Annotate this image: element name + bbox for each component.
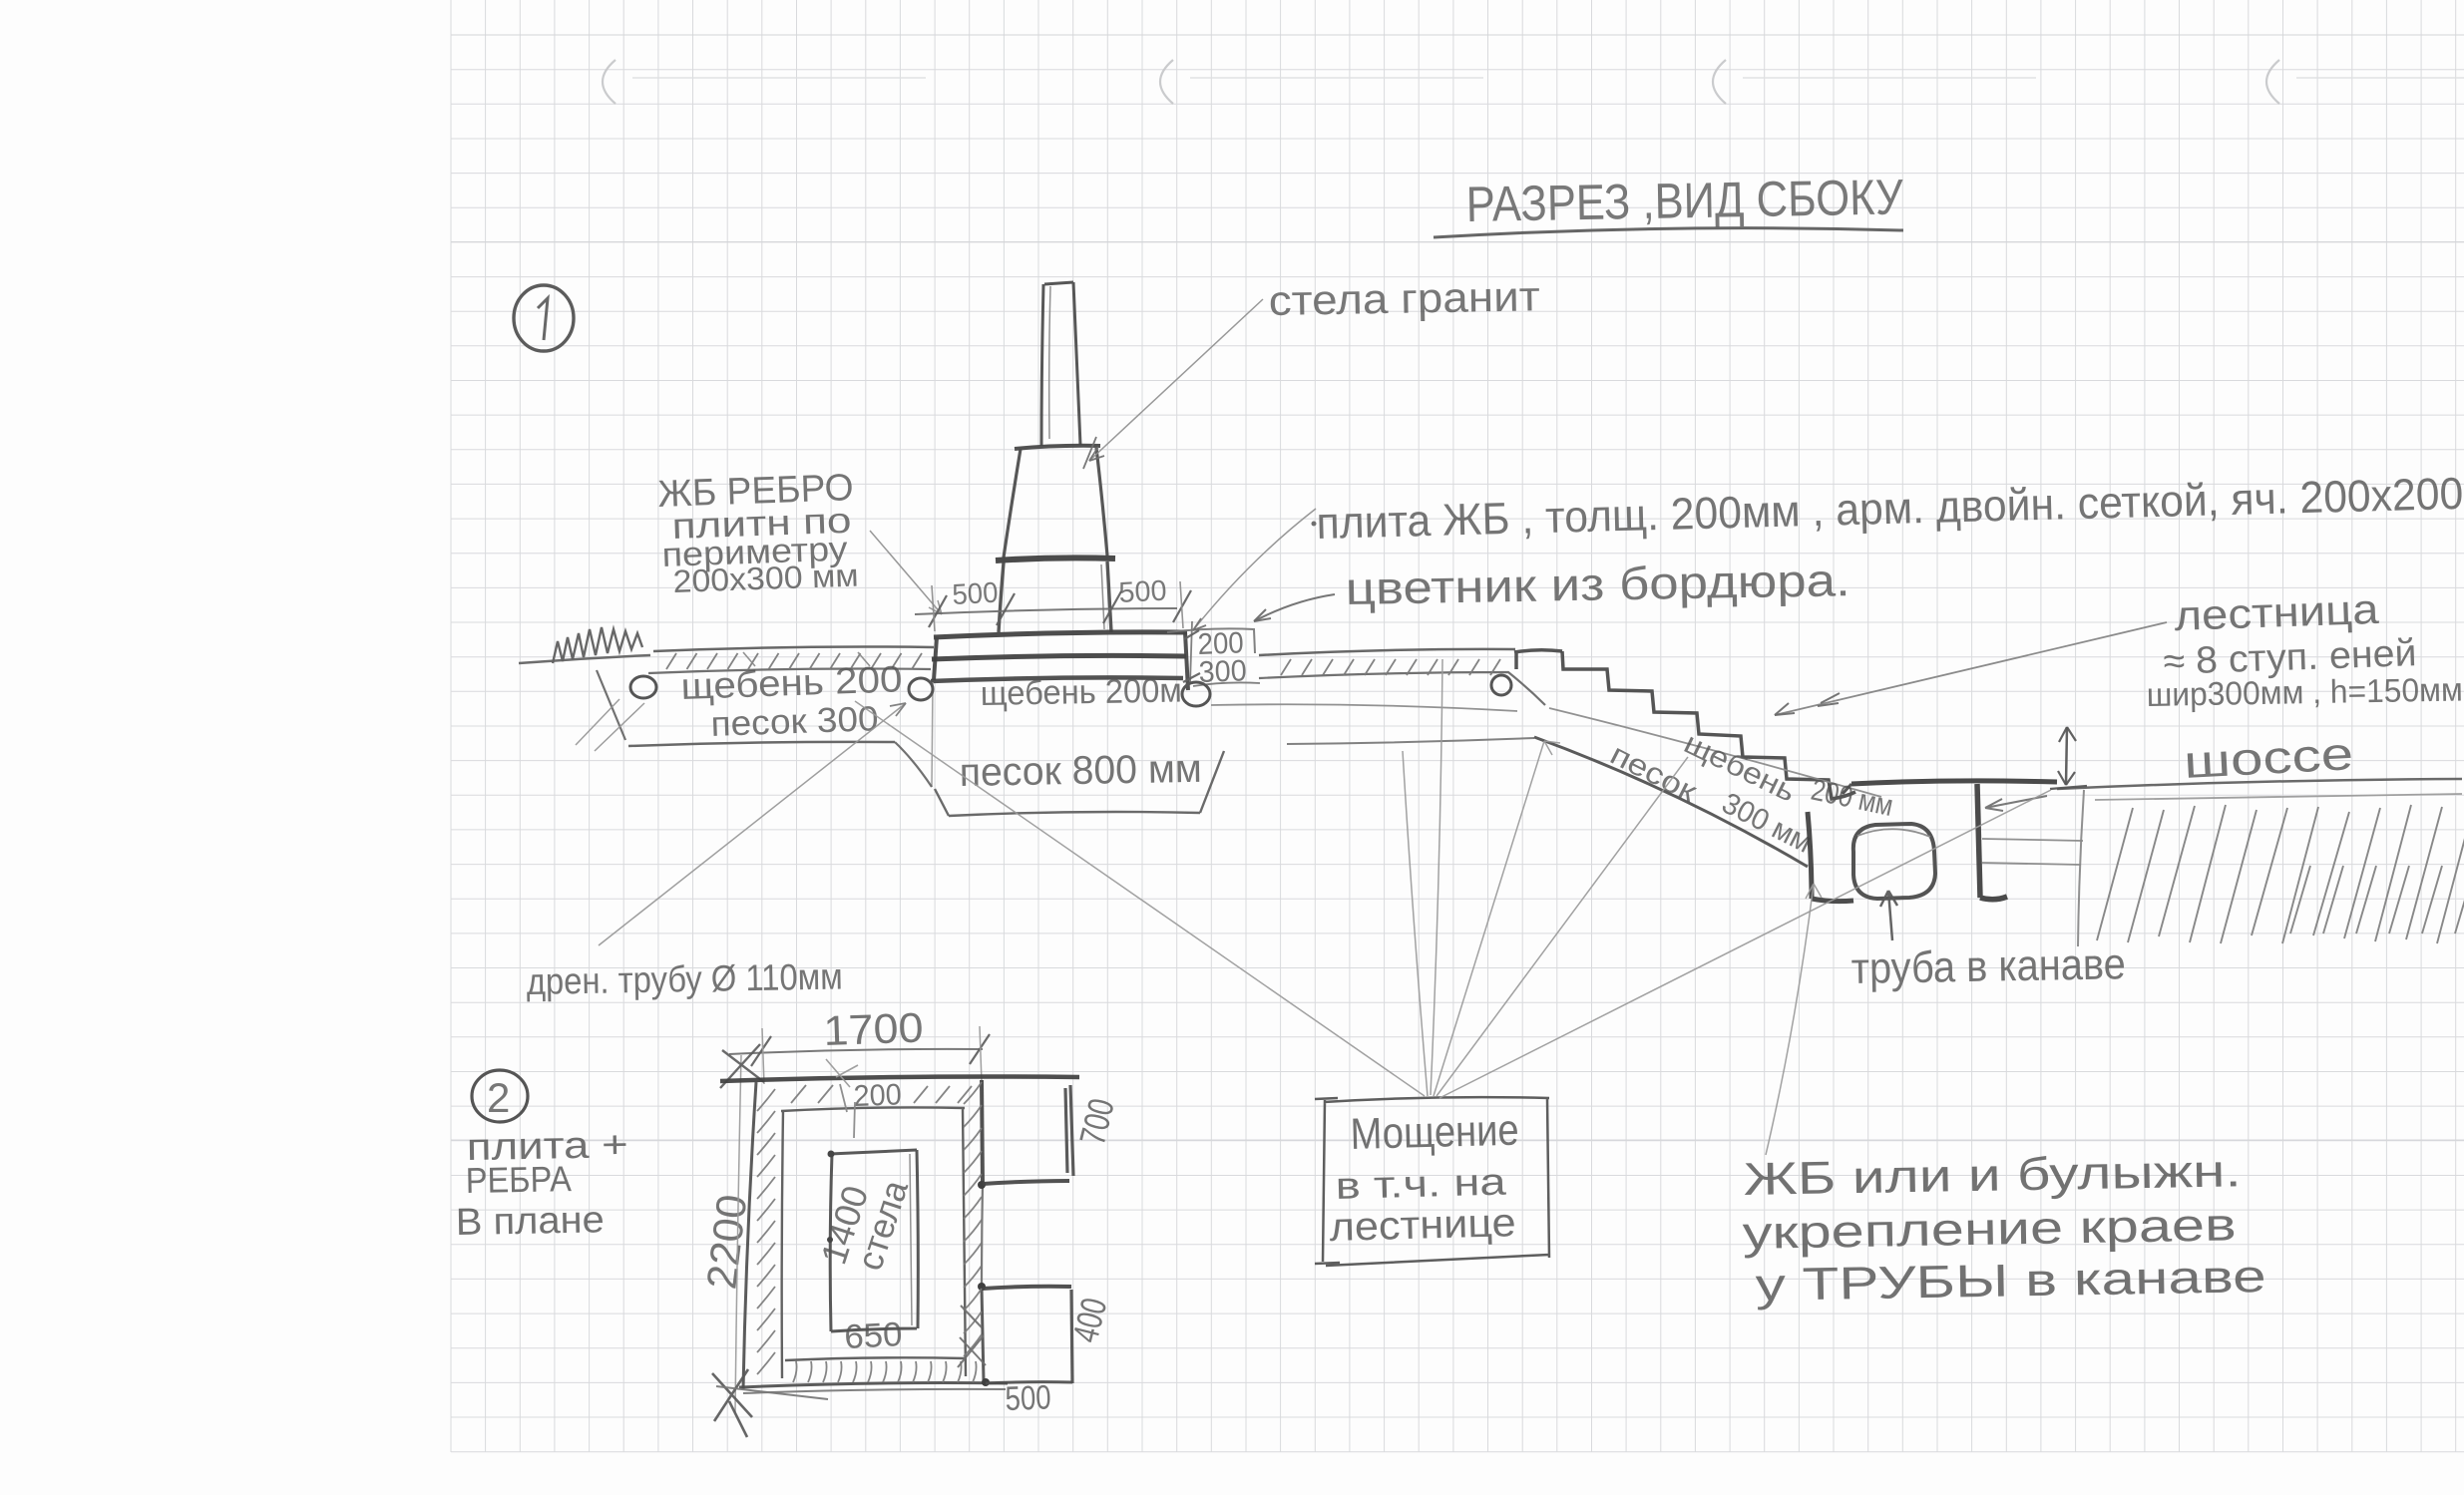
- svg-text:лестнице: лестнице: [1329, 1201, 1516, 1250]
- svg-text:650: 650: [843, 1315, 903, 1356]
- svg-text:шоссе: шоссе: [2183, 727, 2354, 788]
- svg-text:стела гранит: стела гранит: [1268, 272, 1540, 324]
- svg-text:1700: 1700: [823, 1004, 925, 1054]
- svg-text:у ТРУБЫ в канаве: у ТРУБЫ в канаве: [1755, 1250, 2266, 1310]
- svg-text:2: 2: [487, 1074, 510, 1121]
- svg-text:лестница: лестница: [2174, 585, 2380, 639]
- svg-text:Мощение: Мощение: [1350, 1106, 1519, 1159]
- svg-text:РАЗРЕЗ ,ВИД СБОКУ: РАЗРЕЗ ,ВИД СБОКУ: [1465, 169, 1903, 232]
- svg-text:РЕБРА: РЕБРА: [465, 1158, 572, 1201]
- svg-text:200х300 мм: 200х300 мм: [672, 558, 859, 599]
- svg-text:200: 200: [853, 1078, 902, 1113]
- svg-text:В плане: В плане: [455, 1199, 605, 1244]
- svg-text:ЖБ или и булыжн.: ЖБ или и булыжн.: [1743, 1144, 2242, 1205]
- svg-text:песок 300: песок 300: [710, 699, 879, 744]
- svg-text:цветник из бордюра.: цветник из бордюра.: [1345, 554, 1850, 614]
- svg-text:500: 500: [952, 577, 1000, 611]
- svg-text:укрепление краев: укрепление краев: [1742, 1198, 2237, 1259]
- svg-text:песок 800 мм: песок 800 мм: [959, 747, 1202, 795]
- svg-text:дрен. трубу Ø 110мм: дрен. трубу Ø 110мм: [526, 955, 843, 1002]
- svg-text:труба в канаве: труба в канаве: [1850, 939, 2126, 993]
- svg-text:500: 500: [1005, 1378, 1051, 1418]
- svg-text:щебень 200м: щебень 200м: [980, 671, 1182, 713]
- svg-text:500: 500: [1118, 575, 1168, 609]
- svg-text:шир300мм , h=150мм: шир300мм , h=150мм: [2146, 670, 2463, 713]
